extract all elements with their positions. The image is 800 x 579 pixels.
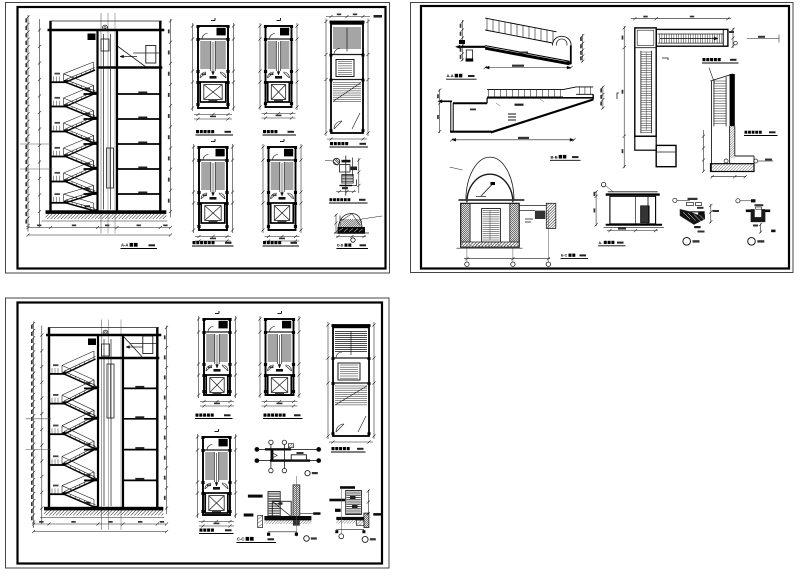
- svg-text:E-C: E-C: [561, 254, 568, 258]
- svg-text:C-C: C-C: [237, 537, 244, 542]
- svg-text:D-D: D-D: [337, 244, 344, 248]
- svg-text:B-B: B-B: [551, 154, 558, 159]
- svg-text:A-A: A-A: [121, 243, 128, 248]
- svg-text:A-A: A-A: [447, 73, 454, 78]
